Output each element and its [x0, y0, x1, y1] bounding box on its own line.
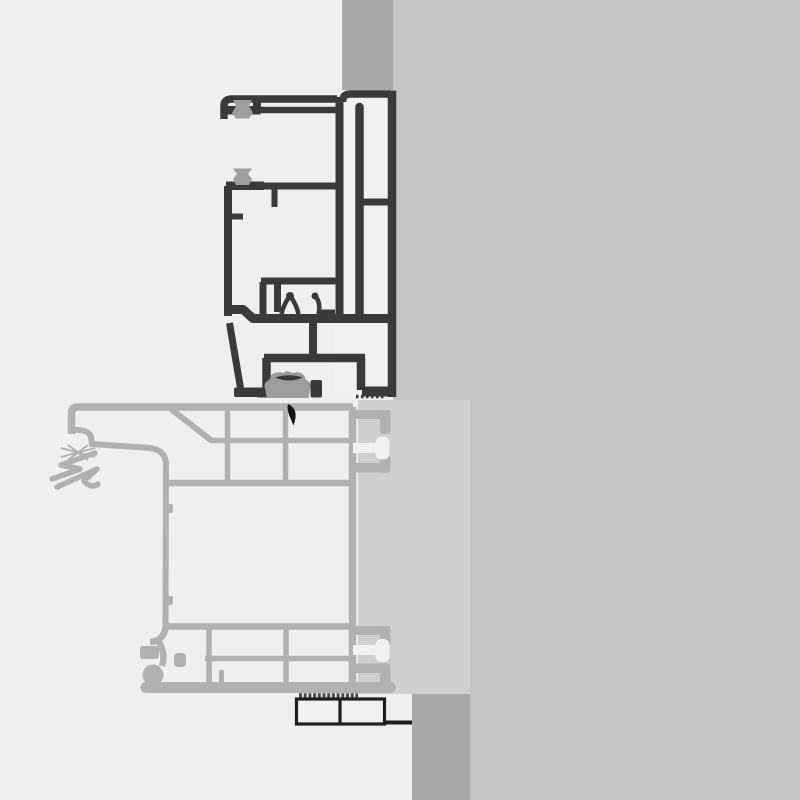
sill-wall-nub-upper — [164, 504, 173, 513]
sill-wall-nub-lower — [164, 596, 173, 605]
sill-foot-blob — [143, 665, 164, 686]
background-gap-below-panel — [385, 694, 412, 800]
glazing-clip2-foot — [320, 310, 335, 318]
gasket-box-mid-foot — [311, 380, 323, 398]
brush-seal-upper — [232, 100, 253, 119]
clip-t-slot-cap — [376, 639, 390, 662]
sill-foot-bump — [174, 653, 186, 667]
clip-t-slot-cap — [376, 437, 390, 460]
background-layer — [0, 0, 800, 800]
clip-t-slot-stem — [353, 443, 379, 453]
cross-section-svg — [0, 0, 800, 800]
sill-foot-plate — [140, 646, 159, 659]
cross-section-diagram — [0, 0, 800, 800]
brush-seal-lower — [233, 169, 252, 186]
wall-band-bottom — [412, 694, 470, 800]
wall-band-top — [342, 0, 393, 90]
clip-hook-down — [380, 663, 391, 690]
clip-t-slot-stem — [353, 645, 379, 655]
clip-leg-down — [380, 410, 391, 434]
